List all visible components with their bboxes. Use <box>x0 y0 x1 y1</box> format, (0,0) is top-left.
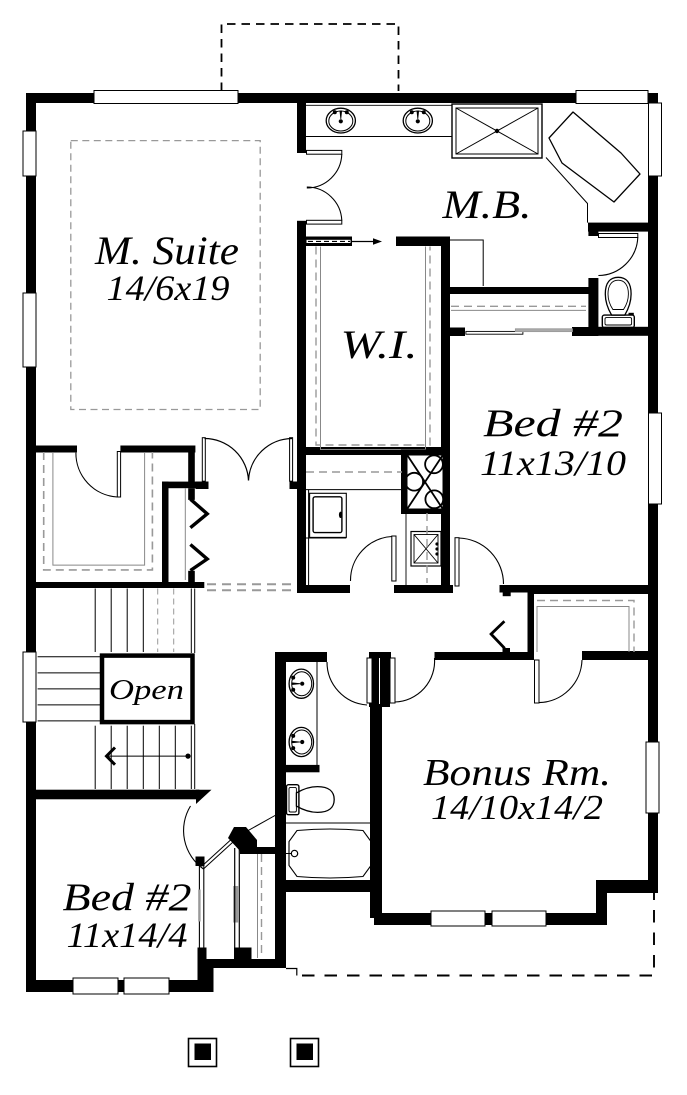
svg-text:14/10x14/2: 14/10x14/2 <box>431 788 603 827</box>
svg-text:M.B.: M.B. <box>441 182 531 227</box>
svg-text:Bed #2: Bed #2 <box>483 402 623 445</box>
svg-text:11x13/10: 11x13/10 <box>480 443 626 483</box>
svg-text:Bed #2: Bed #2 <box>63 876 192 919</box>
svg-text:Open: Open <box>109 674 184 706</box>
svg-text:W.I.: W.I. <box>341 322 418 367</box>
svg-text:14/6x19: 14/6x19 <box>107 268 230 308</box>
svg-text:11x14/4: 11x14/4 <box>67 915 188 955</box>
svg-text:M. Suite: M. Suite <box>94 228 239 273</box>
